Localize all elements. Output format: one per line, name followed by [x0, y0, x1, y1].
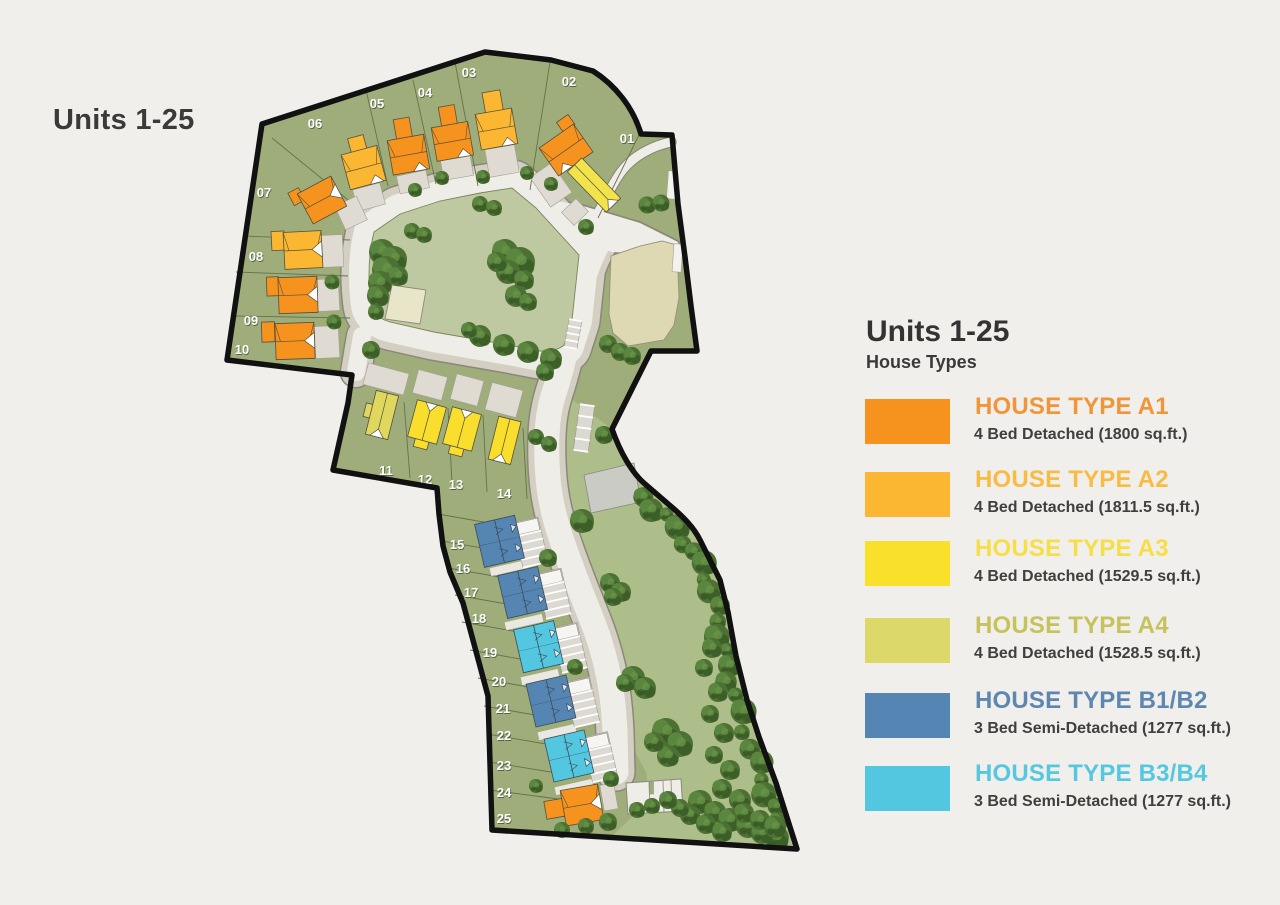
svg-text:22: 22 [497, 728, 511, 743]
svg-text:09: 09 [244, 313, 258, 328]
svg-text:03: 03 [462, 65, 476, 80]
svg-text:18: 18 [472, 611, 486, 626]
svg-text:02: 02 [562, 74, 576, 89]
svg-text:14: 14 [497, 486, 512, 501]
svg-text:13: 13 [449, 477, 463, 492]
svg-text:01: 01 [620, 131, 634, 146]
svg-text:19: 19 [483, 645, 497, 660]
svg-text:06: 06 [308, 116, 322, 131]
svg-text:17: 17 [464, 585, 478, 600]
svg-text:20: 20 [492, 674, 506, 689]
svg-text:04: 04 [418, 85, 433, 100]
svg-text:10: 10 [235, 342, 249, 357]
svg-text:16: 16 [456, 561, 470, 576]
svg-text:07: 07 [257, 185, 271, 200]
svg-text:08: 08 [249, 249, 263, 264]
svg-text:24: 24 [497, 785, 512, 800]
svg-text:21: 21 [496, 701, 510, 716]
svg-text:15: 15 [450, 537, 464, 552]
svg-text:25: 25 [497, 811, 511, 826]
svg-text:23: 23 [497, 758, 511, 773]
svg-text:05: 05 [370, 96, 384, 111]
